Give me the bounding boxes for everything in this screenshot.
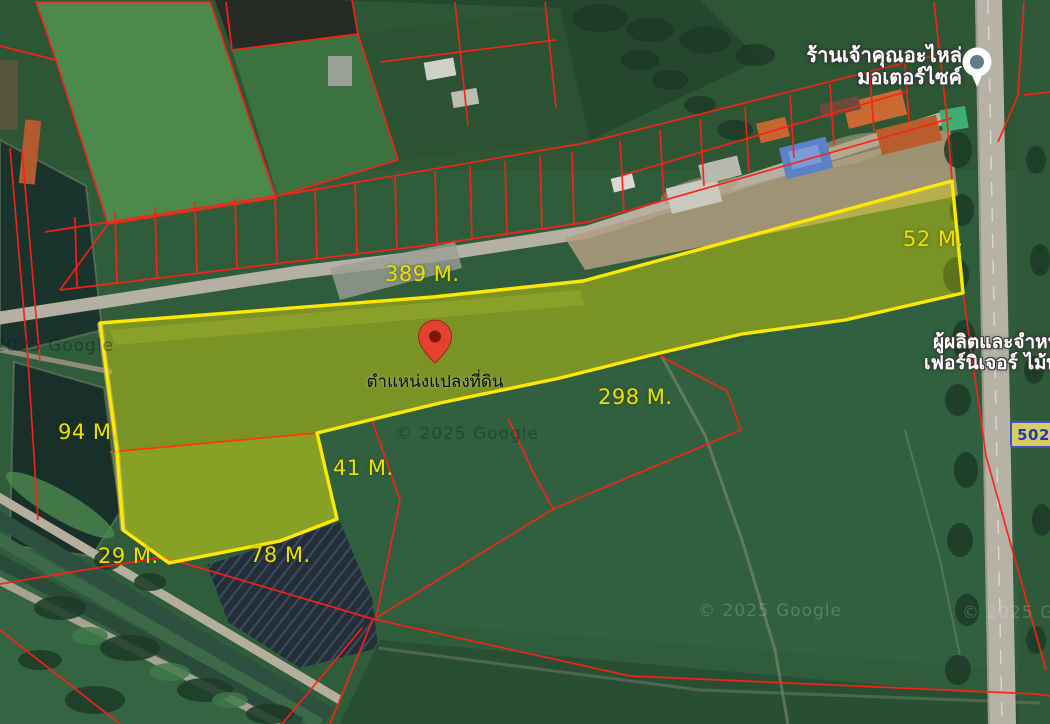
measurement-label-right: 52 M. xyxy=(903,227,964,251)
google-watermark: © 2025 Google xyxy=(395,424,539,444)
satellite-imagery xyxy=(0,0,1050,724)
shop-poi-label-line2: มอเตอร์ไซค์ xyxy=(786,66,962,88)
google-watermark: © 2025 Google xyxy=(698,601,842,621)
measurement-label-top: 389 M. xyxy=(385,262,460,286)
measurement-label-bottom-left: 29 M. xyxy=(98,544,159,568)
furniture-poi-label: ผู้ผลิตและจำหน่า เฟอร์นิเจอร์ ไม้พ xyxy=(933,332,1050,374)
google-watermark: © 2025 Google xyxy=(962,603,1050,623)
measurement-label-bottom: 78 M. xyxy=(250,543,311,567)
measurement-label-inner-right: 41 M. xyxy=(333,456,394,480)
furniture-poi-label-line1: ผู้ผลิตและจำหน่า xyxy=(933,332,1050,353)
measurement-label-bottom-strip: 298 M. xyxy=(598,385,673,409)
pin-label: ตำแหน่งแปลงที่ดิน xyxy=(340,368,530,395)
google-watermark: © 2025 Google xyxy=(0,336,114,356)
road-number-badge: 5027 xyxy=(1010,421,1050,448)
shop-poi-label-line1: ร้านเจ้าคุณอะไหล่ xyxy=(786,44,962,66)
measurement-label-left: 94 M. xyxy=(58,420,119,444)
furniture-poi-label-line2: เฟอร์นิเจอร์ ไม้พ xyxy=(924,353,1050,374)
map-canvas[interactable]: 389 M. 52 M. 298 M. 94 M. 41 M. 29 M. 78… xyxy=(0,0,1050,724)
shop-poi-label: ร้านเจ้าคุณอะไหล่ มอเตอร์ไซค์ xyxy=(786,44,962,88)
